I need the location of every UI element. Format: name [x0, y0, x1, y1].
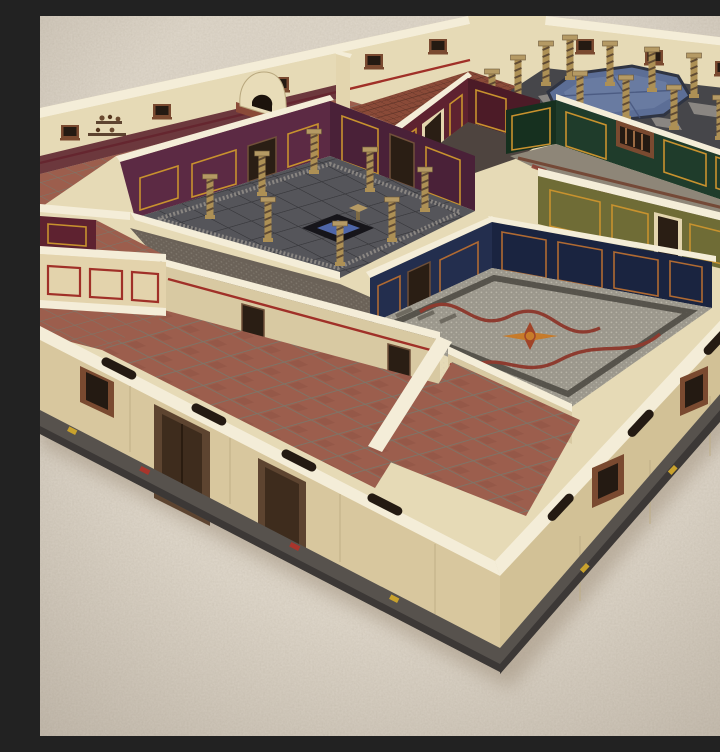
kitchen-partition-wall — [336, 54, 350, 112]
photo-canvas: High-angle photo of a painted tabletop m… — [40, 16, 720, 736]
villa-model-illustration — [40, 16, 720, 736]
